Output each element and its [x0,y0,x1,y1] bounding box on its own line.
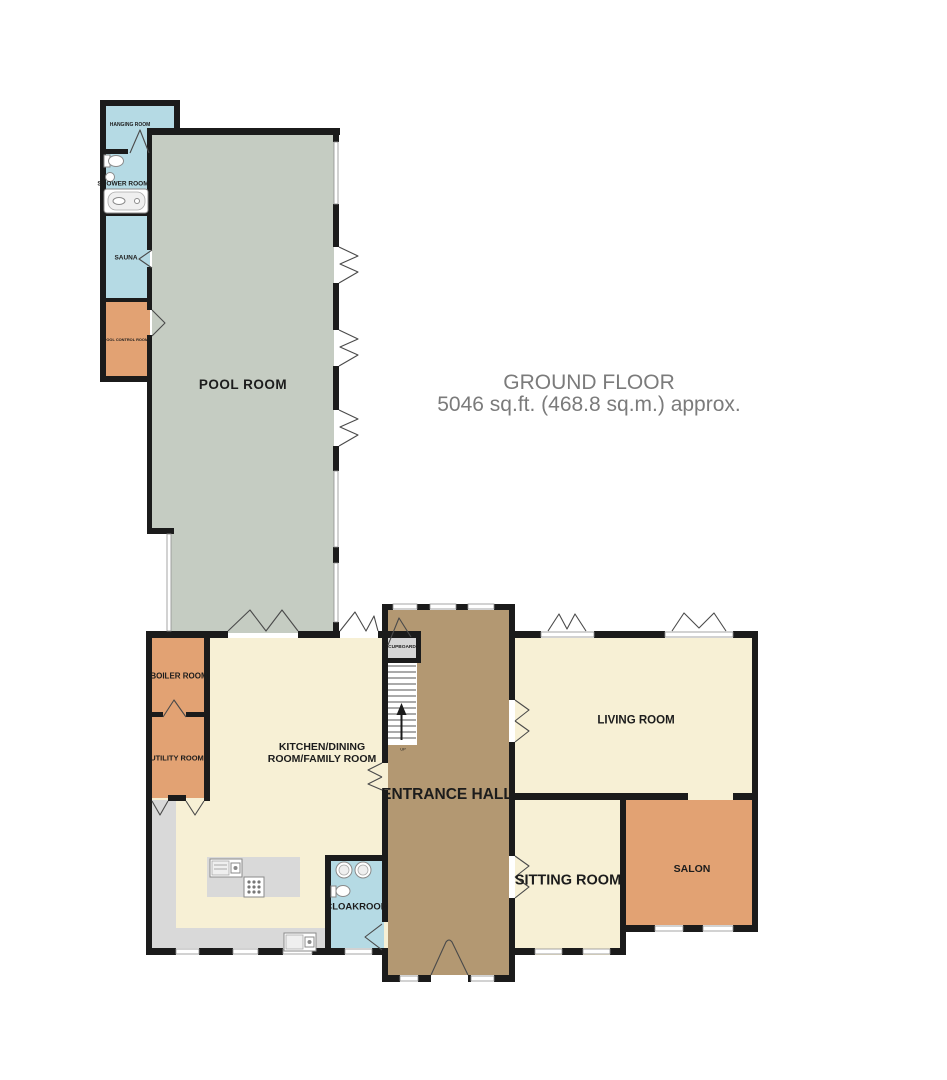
toilet-icon [331,886,336,897]
kitchen-label-line2: ROOM/FAMILY ROOM [268,753,377,765]
cloakroom-label: CLOAKROOM [325,903,388,914]
sauna-label: SAUNA [114,254,137,261]
floor-area: 5046 sq.ft. (468.8 sq.m.) approx. [437,394,741,416]
utility-room-label: UTILITY ROOM [150,755,204,764]
floorplan-title: GROUND FLOOR 5046 sq.ft. (468.8 sq.m.) a… [437,372,741,416]
stairs-up-label: UP [400,748,406,753]
floor-name: GROUND FLOOR [437,372,741,394]
cupboard-label: CUPBOARD [388,645,416,651]
boiler-utility-floor-overlay [152,638,207,798]
entrance-hall-label: ENTRANCE HALL [381,786,513,804]
floorplan-canvas: HANGING ROOM SHOWER ROOM SAUNA POOL CONT… [0,0,947,1080]
sitting-room-label: SITTING ROOM [515,873,621,890]
boiler-room-label: BOILER ROOM [150,671,207,680]
hanging-room-label: HANGING ROOM [110,123,151,129]
kitchen-label-line1: KITCHEN/DINING [268,741,377,753]
salon-label: SALON [674,863,711,875]
pool-room-label: POOL ROOM [199,377,287,393]
shower-room-label: SHOWER ROOM [97,180,148,187]
kitchen-label: KITCHEN/DINING ROOM/FAMILY ROOM [268,741,377,765]
living-room-label: LIVING ROOM [597,714,674,727]
pool-control-room-label: POOL CONTROL ROOM [104,338,148,342]
floorplan-drawing [0,0,947,1080]
